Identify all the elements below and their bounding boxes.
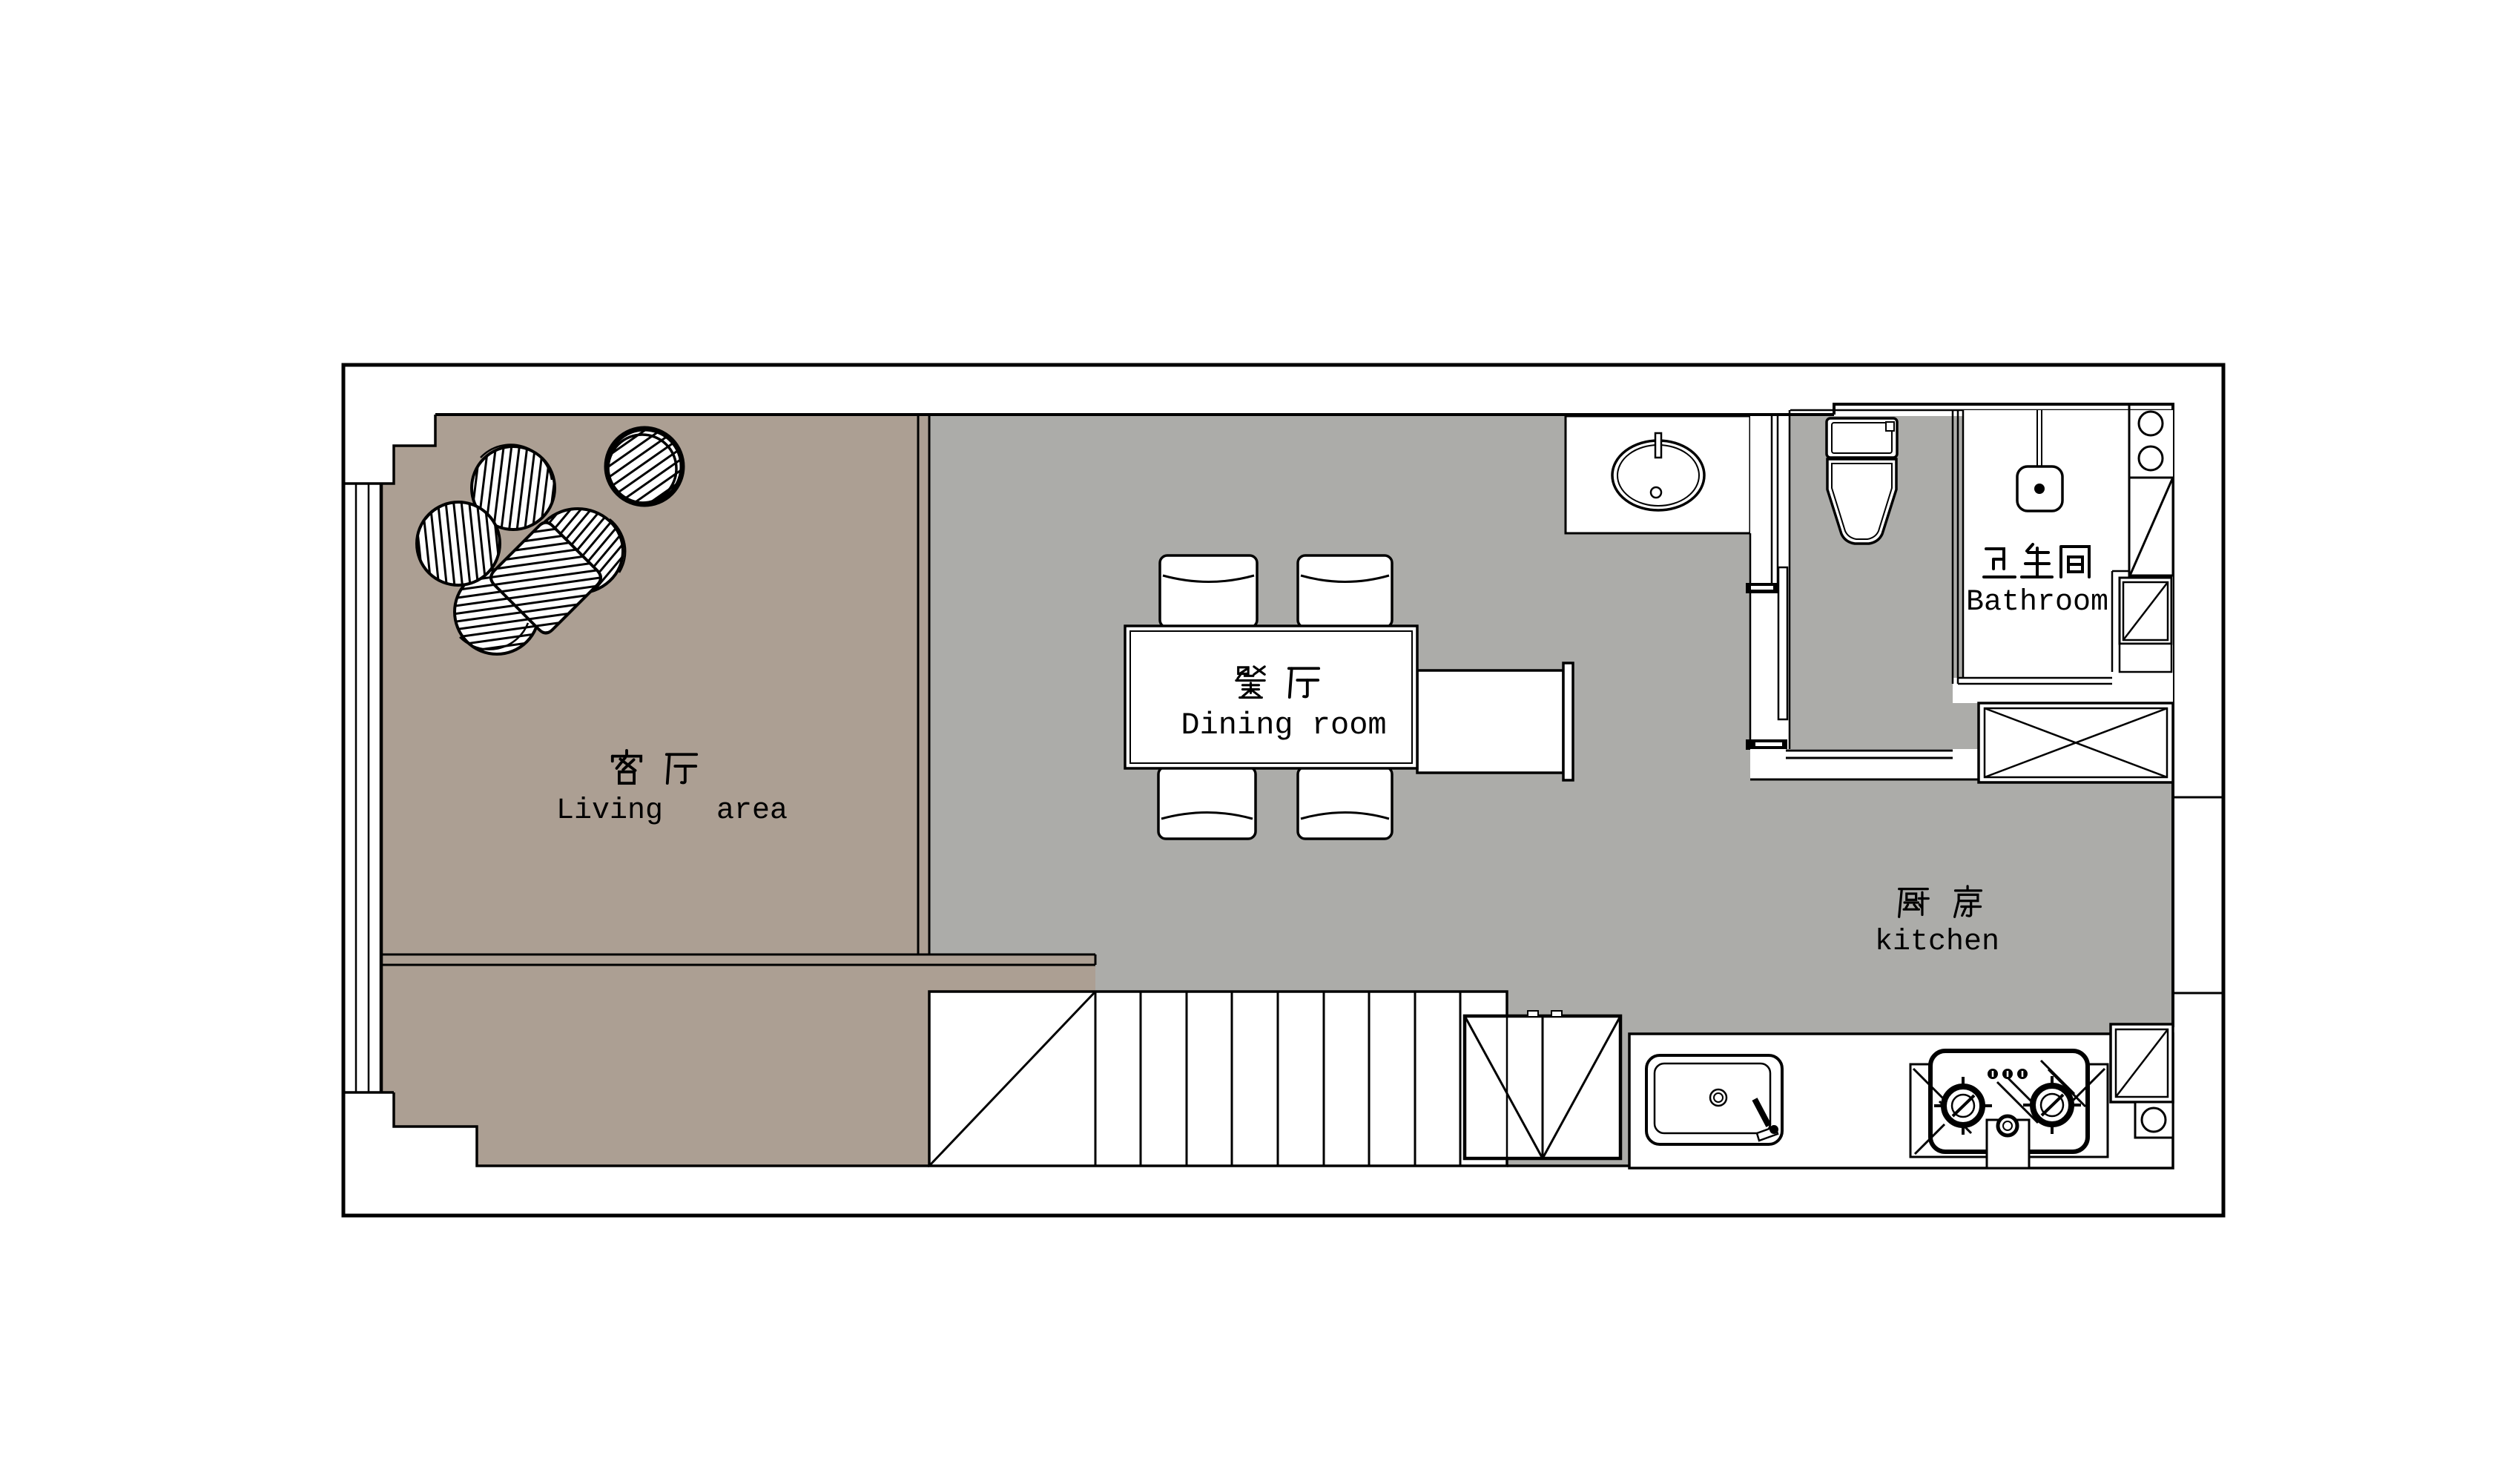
svg-text:Dining room: Dining room bbox=[1181, 708, 1386, 743]
svg-text:kitchen: kitchen bbox=[1875, 926, 1999, 959]
svg-text:Bathroom: Bathroom bbox=[1966, 586, 2108, 619]
svg-text:Living area: Living area bbox=[556, 794, 788, 828]
